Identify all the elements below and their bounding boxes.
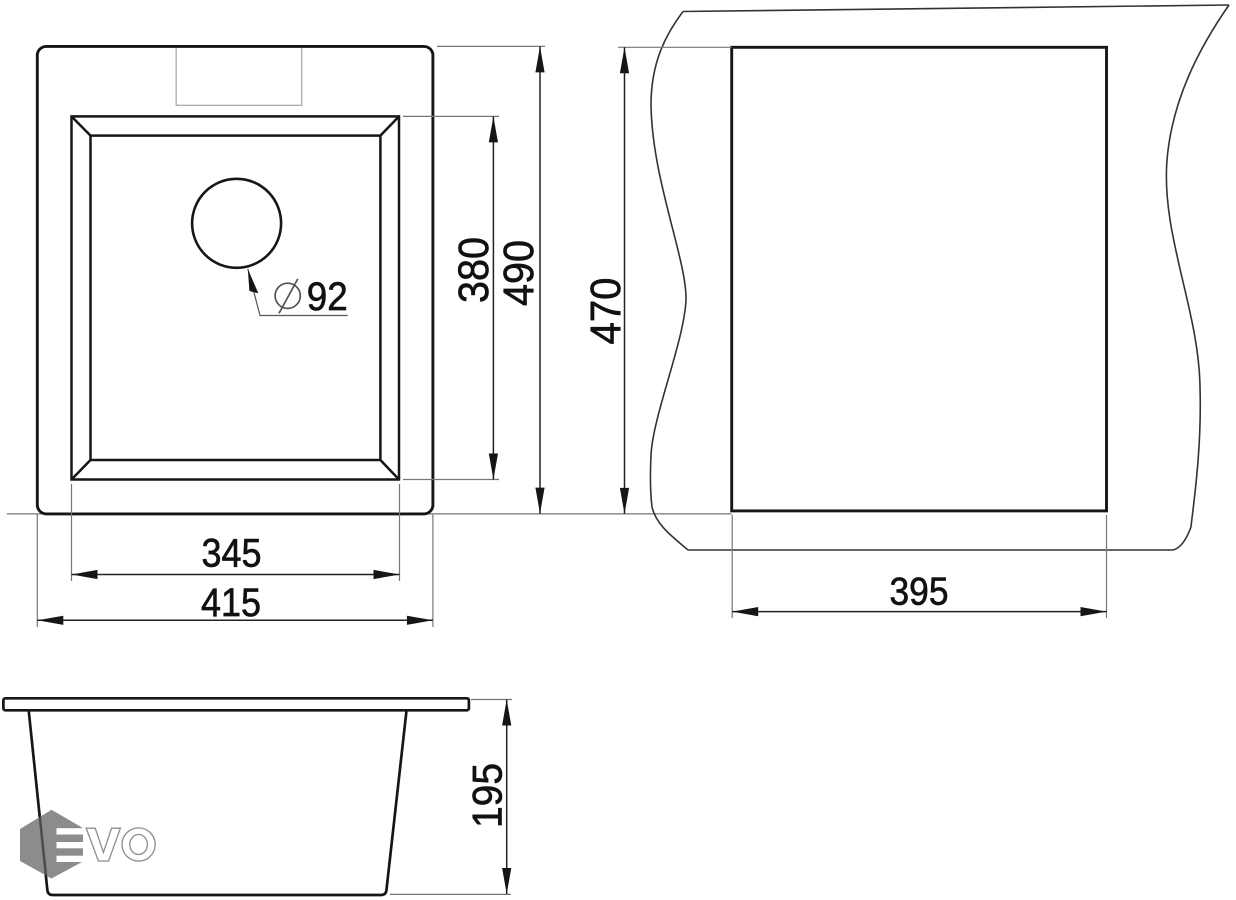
svg-text:92: 92 — [307, 275, 348, 319]
svg-text:380: 380 — [450, 237, 498, 303]
svg-text:470: 470 — [582, 278, 630, 345]
svg-text:490: 490 — [495, 240, 543, 306]
svg-text:395: 395 — [890, 571, 949, 614]
svg-text:195: 195 — [464, 763, 511, 828]
svg-text:415: 415 — [201, 581, 261, 625]
svg-text:345: 345 — [202, 532, 262, 576]
